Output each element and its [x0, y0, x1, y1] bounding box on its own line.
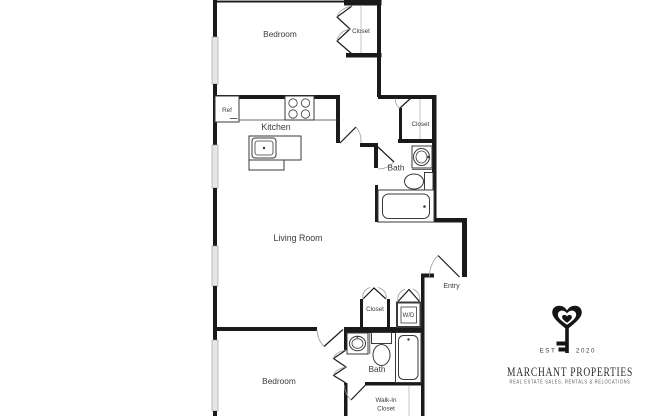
toilet-upper-bowl	[405, 174, 424, 189]
window-left-4	[212, 340, 218, 411]
window-left-3	[212, 246, 218, 286]
label-wd: W/D	[403, 313, 415, 319]
floor-plan-page: Bedroom Closet Kitchen Ref Closet Bath L…	[0, 0, 652, 416]
sink-lower-faucet	[356, 336, 358, 338]
sink-upper-faucet	[427, 156, 429, 158]
bathtub-lower-drain	[407, 338, 409, 340]
island-sink-faucet	[263, 147, 265, 149]
kitchen-fixtures	[215, 96, 338, 170]
wall-bath-left-stub	[374, 143, 378, 168]
logo-tagline: REAL ESTATE SALES, RENTALS & RELOCATIONS	[510, 380, 631, 386]
logo-est: EST	[540, 348, 557, 355]
wall-left-3	[213, 188, 217, 246]
door-bedroom-top-arc	[356, 127, 361, 143]
label-walkin-line1: Walk-In	[375, 397, 397, 404]
key-tooth-2	[559, 348, 566, 352]
key-shaft	[565, 327, 569, 353]
label-bedroom-top: Bedroom	[263, 29, 297, 39]
door-hall-closet	[400, 99, 411, 109]
bath-upper-fixtures	[378, 146, 434, 222]
wall-left-5	[213, 411, 217, 416]
wall-left-4	[213, 286, 217, 340]
heart-key-icon	[552, 306, 582, 353]
logo-company-name: MARCHANT PROPERTIES	[507, 364, 633, 379]
door-entry	[438, 256, 460, 278]
wall-closet3-left	[360, 299, 363, 327]
wall-hallcloset-left	[399, 108, 402, 143]
label-bedroom-bottom: Bedroom	[262, 376, 296, 386]
label-kitchen: Kitchen	[261, 122, 290, 132]
toilet-upper-tank	[425, 173, 434, 191]
wall-closet3-right	[387, 299, 390, 327]
label-laundry-closet: Closet	[366, 306, 384, 313]
door-walkin	[351, 385, 366, 400]
wall-left-1	[213, 0, 217, 37]
door-bedroom-bottom-arc	[317, 330, 324, 347]
label-hall-closet: Closet	[412, 121, 430, 128]
floor-plan-svg: Bedroom Closet Kitchen Ref Closet Bath L…	[0, 0, 652, 416]
wall-hallcloset-bottom	[398, 139, 436, 143]
closet-header-wall	[344, 0, 382, 6]
wall-entry-bottom	[421, 274, 434, 278]
label-bath-upper: Bath	[387, 163, 404, 173]
label-bath-lower: Bath	[368, 364, 385, 374]
door-bath-upper	[378, 147, 394, 162]
toilet-lower-bowl	[373, 345, 390, 366]
wall-hall-left	[336, 95, 340, 143]
brand-logo: EST 2020 MARCHANT PROPERTIES REAL ESTATE…	[507, 306, 633, 386]
bathtub-lower-inner	[399, 336, 419, 380]
door-bedroom-bottom	[324, 330, 343, 347]
key-tooth-1	[557, 342, 566, 346]
wall-top	[214, 1, 345, 3]
wall-bedroom2-top	[214, 327, 317, 331]
label-walkin-line2: Closet	[377, 406, 395, 413]
wall-lower-right	[421, 277, 425, 416]
window-left-2	[212, 145, 218, 188]
label-living-room: Living Room	[274, 233, 323, 243]
kitchen-island-lower	[249, 160, 284, 170]
door-bedroom-top	[340, 127, 356, 143]
bath-lower-fixtures	[347, 333, 421, 383]
bathtub-upper-inner	[383, 194, 430, 219]
door-hall-closet-arc	[395, 99, 399, 109]
label-entry: Entry	[443, 283, 460, 290]
window-left-1	[212, 37, 218, 84]
label-bedroom-closet: Closet	[352, 28, 370, 35]
toilet-lower-tank	[372, 333, 392, 344]
label-ref: Ref	[222, 107, 232, 114]
wall-entry-right	[462, 218, 467, 277]
bathtub-upper-drain	[423, 205, 426, 208]
logo-year: 2020	[576, 348, 596, 355]
wall-bathcol-top	[378, 95, 436, 99]
wall-bedroom-right	[377, 0, 381, 97]
